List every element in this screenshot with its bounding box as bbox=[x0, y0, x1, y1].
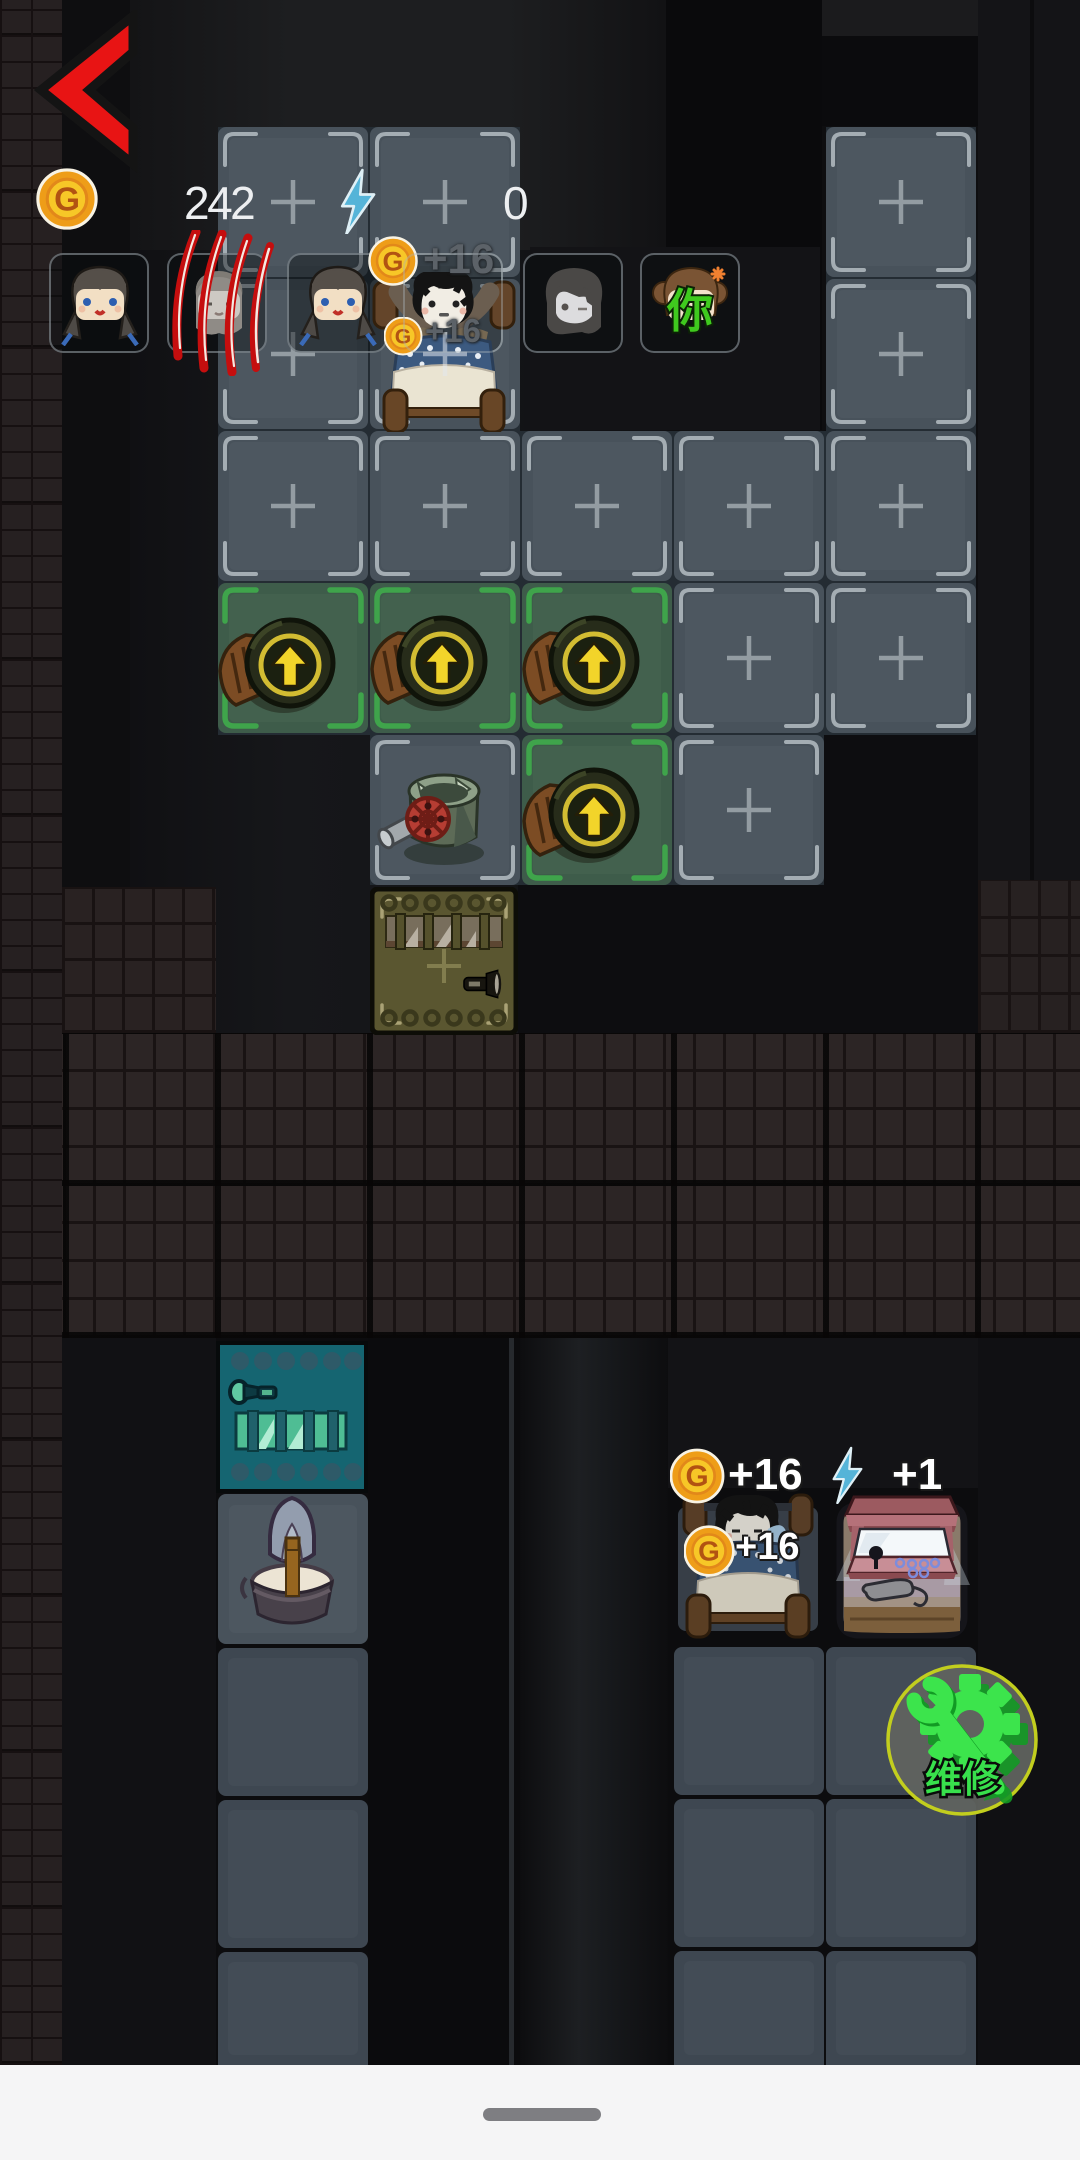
svg-text:维修: 维修 bbox=[925, 1759, 1000, 1800]
svg-text:你: 你 bbox=[666, 285, 713, 337]
